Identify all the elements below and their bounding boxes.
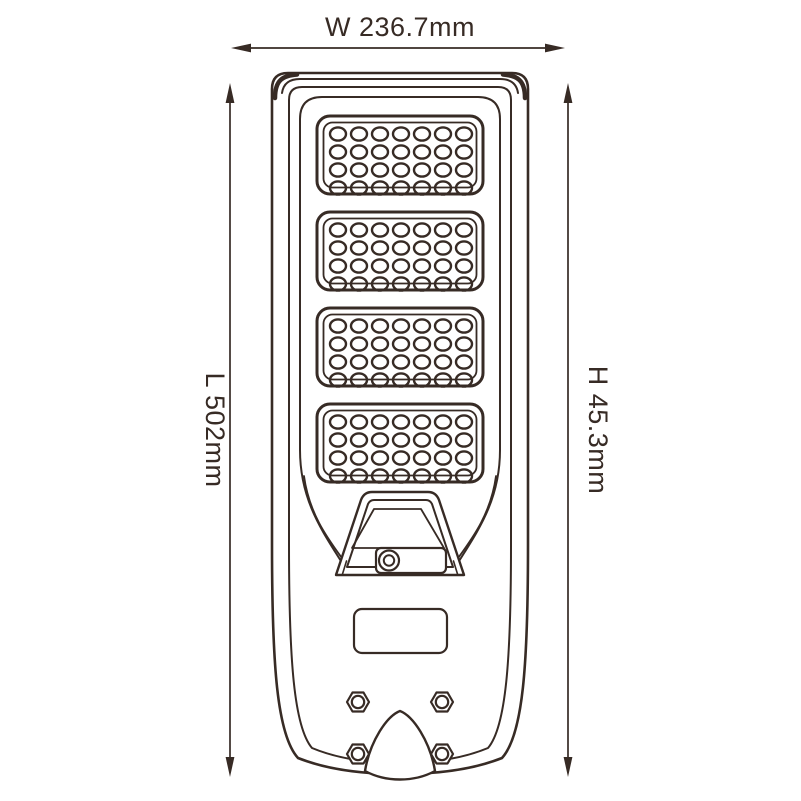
led-icon: [435, 451, 451, 464]
mounting-bolt: [347, 693, 369, 712]
led-icon: [351, 223, 367, 236]
dimension-annotations: W 236.7mm L 502mm H 45.3mm: [200, 12, 613, 777]
street-light-body: [272, 73, 528, 780]
mounting-bolt: [431, 693, 453, 712]
led-panel: [317, 404, 483, 483]
led-icon: [456, 415, 472, 428]
led-icon: [372, 145, 388, 158]
led-icon: [414, 241, 430, 254]
motion-sensor-pod: [336, 492, 464, 575]
led-icon: [414, 451, 430, 464]
led-icon: [393, 433, 409, 446]
led-icon: [435, 163, 451, 176]
length-dimension: L 502mm: [200, 83, 234, 777]
led-icon: [435, 433, 451, 446]
led-icon: [456, 433, 472, 446]
led-icon: [351, 259, 367, 272]
arrow-up-icon: [226, 83, 235, 103]
led-panel: [317, 212, 483, 291]
height-dimension: H 45.3mm: [564, 83, 613, 777]
led-icon: [351, 355, 367, 368]
led-icon: [414, 355, 430, 368]
led-icon: [393, 127, 409, 140]
led-icon: [330, 337, 346, 350]
led-icon: [414, 433, 430, 446]
led-icon: [330, 415, 346, 428]
arrow-up-icon: [564, 83, 573, 103]
led-grid: [330, 223, 472, 290]
led-icon: [393, 259, 409, 272]
led-icon: [330, 259, 346, 272]
led-icon: [351, 127, 367, 140]
led-icon: [372, 241, 388, 254]
technical-drawing-page: W 236.7mm L 502mm H 45.3mm: [0, 0, 801, 801]
led-icon: [414, 127, 430, 140]
led-icon: [330, 319, 346, 332]
led-icon: [393, 451, 409, 464]
led-icon: [456, 127, 472, 140]
led-icon: [330, 163, 346, 176]
led-icon: [351, 145, 367, 158]
led-icon: [372, 127, 388, 140]
led-panel: [317, 116, 483, 195]
led-icon: [393, 241, 409, 254]
height-dimension-label: H 45.3mm: [583, 366, 613, 495]
led-icon: [414, 337, 430, 350]
led-icon: [414, 163, 430, 176]
lamp-outer-shell: [272, 73, 528, 774]
led-icon: [435, 337, 451, 350]
led-icon: [372, 223, 388, 236]
led-icon: [393, 337, 409, 350]
led-panel: [317, 308, 483, 387]
led-icon: [330, 451, 346, 464]
top-cap-corner-left: [275, 75, 297, 99]
led-icon: [456, 241, 472, 254]
led-icon: [351, 241, 367, 254]
led-icon: [435, 259, 451, 272]
led-icon: [393, 145, 409, 158]
led-panel-array: [317, 116, 483, 483]
pole-mount-cover: [365, 711, 435, 780]
led-icon: [456, 163, 472, 176]
led-icon: [435, 223, 451, 236]
led-icon: [435, 127, 451, 140]
arrow-right-icon: [545, 44, 565, 53]
led-icon: [330, 433, 346, 446]
led-icon: [372, 259, 388, 272]
led-icon: [330, 355, 346, 368]
led-icon: [372, 355, 388, 368]
mounting-bolt: [347, 745, 369, 764]
led-icon: [372, 451, 388, 464]
led-icon: [456, 223, 472, 236]
length-dimension-label: L 502mm: [200, 372, 230, 487]
led-grid: [330, 127, 472, 194]
led-icon: [393, 355, 409, 368]
led-icon: [456, 319, 472, 332]
led-icon: [414, 223, 430, 236]
led-icon: [414, 145, 430, 158]
led-icon: [435, 415, 451, 428]
led-icon: [435, 319, 451, 332]
led-icon: [351, 415, 367, 428]
led-icon: [351, 319, 367, 332]
led-icon: [372, 415, 388, 428]
led-icon: [351, 451, 367, 464]
label-plate: [354, 609, 447, 653]
led-icon: [456, 259, 472, 272]
led-icon: [393, 319, 409, 332]
led-icon: [330, 127, 346, 140]
width-dimension-label: W 236.7mm: [325, 12, 475, 42]
led-icon: [372, 337, 388, 350]
led-icon: [435, 355, 451, 368]
led-icon: [372, 163, 388, 176]
led-icon: [456, 145, 472, 158]
top-cap-corner-right: [503, 75, 525, 99]
led-icon: [435, 241, 451, 254]
street-light-drawing: W 236.7mm L 502mm H 45.3mm: [0, 0, 801, 801]
mounting-bolt: [431, 745, 453, 764]
led-icon: [456, 451, 472, 464]
led-icon: [393, 223, 409, 236]
led-icon: [372, 319, 388, 332]
led-icon: [330, 145, 346, 158]
led-icon: [330, 223, 346, 236]
led-icon: [456, 355, 472, 368]
led-icon: [414, 259, 430, 272]
led-icon: [330, 241, 346, 254]
led-icon: [456, 337, 472, 350]
width-dimension: W 236.7mm: [231, 12, 565, 52]
led-icon: [393, 415, 409, 428]
led-icon: [393, 163, 409, 176]
led-icon: [351, 163, 367, 176]
led-icon: [414, 319, 430, 332]
arrow-left-icon: [231, 44, 251, 53]
led-icon: [414, 415, 430, 428]
led-icon: [435, 145, 451, 158]
led-icon: [351, 433, 367, 446]
arrow-down-icon: [226, 757, 235, 777]
led-grid: [330, 415, 472, 482]
led-grid: [330, 319, 472, 386]
arrow-down-icon: [564, 757, 573, 777]
led-icon: [372, 433, 388, 446]
led-icon: [351, 337, 367, 350]
